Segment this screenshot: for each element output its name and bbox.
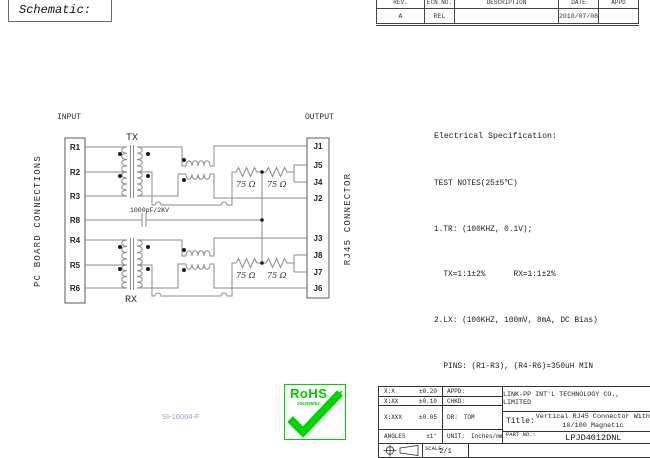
pin-label-r4: R4 [70,236,81,245]
part-no-cell: PART NO.: LPJD4012DNL [503,432,650,444]
capacitor-symbol [142,213,146,227]
output-label: OUTPUT [305,113,334,122]
wire-j2 [210,174,307,198]
approval-row: APPD: [443,387,503,397]
approval-value: TOM [464,414,475,421]
company-name: LINK-PP INT'L TECHNOLOGY CO., LIMITED [503,391,650,407]
tolerance-row: X:XXX ±0.05 [379,406,443,430]
pc-board-connections-label: PC BOARD CONNECTIONS [33,155,43,287]
wire-j1 [210,146,307,166]
pin-label-r5: R5 [70,261,81,270]
rev-value-rev: A [377,8,424,23]
drawing-title-line2: 10/100 Magnetic [535,422,650,431]
wire-j6 [210,264,307,288]
input-label: INPUT [57,113,81,122]
pin-label-j5: J5 [314,161,323,170]
pin-label-r6: R6 [70,284,81,293]
tolerance-value: ±1° [426,433,437,440]
projection-symbol-cell [379,444,423,457]
wire-tx-sec-top [137,147,186,166]
tolerance-label: X:X [384,388,395,395]
resistor-label: 75 Ω [267,180,287,189]
rev-header-ecn: ECN NO. [424,0,454,8]
pin-label-j7: J7 [314,268,323,277]
tolerance-value: ±0.20 [419,388,437,395]
approval-label: UNIT: [447,433,465,440]
pin-label-r2: R2 [70,168,81,177]
approval-value: Inches/mm [471,433,503,440]
spec-line: TX=1:1±2% RX=1:1±2% [434,271,640,281]
pin-label-j1: J1 [314,142,323,151]
pin-label-j2: J2 [314,194,323,203]
bracket-j8-j7 [294,255,307,272]
resistor-label: 75 Ω [236,180,256,189]
wire-rx-sec-bottom [137,264,186,288]
wire-rx-sec-top [137,240,186,256]
approval-label: DR: [447,414,458,421]
capacitor-label: 1000pF/2KV [130,207,169,214]
rev-header-date: DATE [558,0,598,8]
approval-row: CHKD: [443,397,503,406]
schematic-title: Schematic: [9,0,111,17]
title-label: Title: [506,417,535,426]
revision-table: REV. ECN NO. DESCRIPTION DATE APPD A REL… [376,0,639,24]
resistor-rx-right [266,259,294,268]
rev-header-description: DESCRIPTION [454,0,558,8]
part-no-label: PART NO.: [506,432,536,438]
title-cell: Title: Vertical RJ45 Connector With 10/1… [503,412,650,432]
pin-label-j3: J3 [314,234,323,243]
rohs-mark: RoHS 2002/95/EC [284,384,346,440]
tx-choke [186,161,210,180]
rev-header-rev: REV. [377,0,424,8]
bracket-j5-j4 [294,165,307,182]
pin-label-r8: R8 [70,216,81,225]
tolerance-label: X:XXX [384,414,402,421]
pin-label-j4: J4 [314,178,323,187]
drawing-sheet: INPUT OUTPUT TX RX 1000pF/2KV PC BOARD C… [0,0,650,458]
schematic-title-box: Schematic: [8,0,112,22]
tolerance-label: X:XX [384,398,398,405]
rev-value-appd [598,8,638,23]
spec-line: 1.TR: (100KHZ, 0.1V); [434,226,640,236]
rev-value-description [454,8,558,23]
drawing-title-line1: Vertical RJ45 Connector With [535,413,650,422]
tolerance-label: ANGLES [384,433,406,440]
pin-label-r3: R3 [70,192,81,201]
scale-cell: SCALE: 2/1 [423,444,469,457]
scale-value: 2/1 [423,448,468,456]
tolerance-row: X:X ±0.20 [379,387,443,397]
wire-tx-sec-bottom [137,174,186,196]
rx-label: RX [125,295,137,306]
resistor-label: 75 Ω [236,271,256,280]
drawing-title: Vertical RJ45 Connector With 10/100 Magn… [535,413,650,430]
rx-transformer [122,238,143,290]
rx-choke [186,251,210,270]
tx-label: TX [126,133,138,144]
tolerance-value: ±0.05 [419,414,437,421]
rj45-connector-label: RJ45 CONNECTOR [343,173,353,265]
rev-header-appd: APPD [598,0,638,8]
approval-row: DR: TOM [443,406,503,430]
approval-label: CHKD: [447,398,465,405]
spec-line: PINS: (R1-R3), (R4-R6)=350uH MIN [434,363,640,373]
rev-value-date: 2010/07/08 [558,8,598,23]
pin-label-j8: J8 [314,251,323,260]
spec-line: 2.LX: (100KHZ, 100mV, 8mA, DC Bias) [434,317,640,327]
pin-label-j6: J6 [314,284,323,293]
tolerance-row: ANGLES ±1° [379,430,443,444]
pin-label-r1: R1 [70,143,81,152]
tolerance-row: X:XX ±0.10 [379,397,443,406]
rev-value-ecn: REL [424,8,454,23]
title-block: X:X ±0.20 X:XX ±0.10 X:XXX ±0.05 ANGLES … [378,386,650,458]
approval-label: APPD: [447,388,465,395]
tolerance-value: ±0.10 [419,398,437,405]
resistor-tx-right [266,168,294,177]
approval-row: UNIT: Inches/mm [443,430,503,444]
doc-code: SI-16004-F [162,412,200,421]
third-angle-projection-icon [381,444,421,457]
rohs-directive: 2002/95/EC [297,401,321,406]
spec-title: Electrical Specification: [434,132,640,141]
part-no-value: LPJD4012DNL [536,433,650,443]
rohs-label: RoHS [290,386,327,401]
wire-j3 [210,238,307,256]
company-cell: LINK-PP INT'L TECHNOLOGY CO., LIMITED [503,387,650,412]
resistor-label: 75 Ω [267,271,287,280]
spec-line: TEST NOTES(25±5℃) [434,180,640,190]
